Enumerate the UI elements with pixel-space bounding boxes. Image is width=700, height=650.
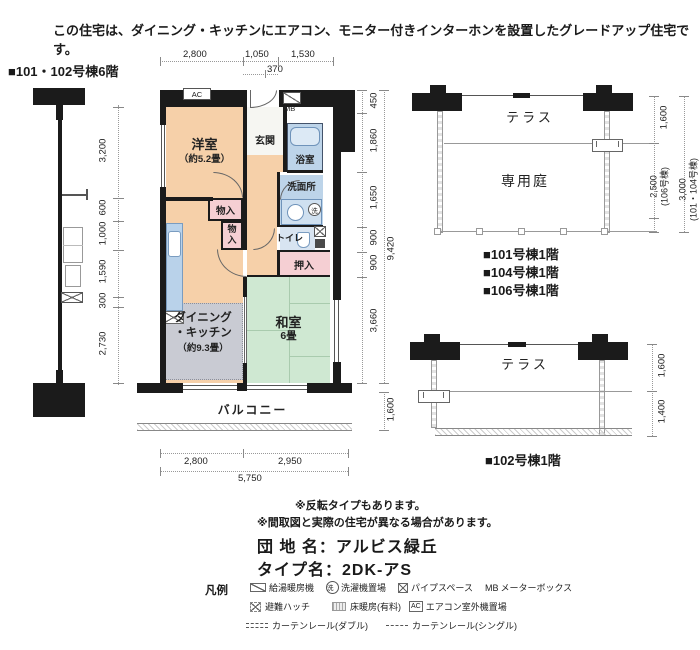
closet-upper-label: 物入 — [208, 203, 243, 217]
dim-line — [160, 471, 348, 472]
room-dk-label1: ダイニング — [163, 309, 243, 325]
wall — [137, 383, 183, 393]
entrance-door-arc — [250, 90, 277, 108]
wall — [166, 197, 213, 201]
dim-tick — [160, 467, 161, 476]
wall — [583, 93, 633, 111]
legend-pipe-label: パイプスペース — [411, 581, 473, 594]
garden-fence-post — [437, 111, 443, 233]
building-label: ■104号棟1階 — [483, 262, 559, 281]
garden-gate — [618, 141, 619, 147]
wall — [33, 88, 85, 105]
dim-tick — [357, 252, 367, 253]
garden-fence-post — [434, 228, 441, 235]
fence-line — [450, 391, 632, 392]
dim-tick — [113, 297, 124, 298]
terrace-step — [423, 392, 424, 398]
dim-label-balcony: 1,600 — [386, 388, 397, 432]
ac-unit-icon: AC — [183, 88, 211, 100]
bathtub-icon — [290, 127, 320, 146]
window — [338, 300, 339, 362]
building-label: ■106号棟1階 — [483, 280, 559, 299]
dim-label: 900 — [369, 241, 380, 285]
dim-tick — [348, 449, 349, 458]
dim-tick — [649, 96, 659, 97]
room-oshiire-label: 押入 — [278, 257, 330, 272]
room-washroom-label: 洗面所 — [280, 179, 323, 193]
dim-tick — [649, 143, 659, 144]
dim-tick — [647, 436, 657, 437]
dim-note: (106号棟) — [659, 155, 670, 219]
terrace-label-upper: テラス — [495, 107, 565, 126]
wall — [430, 85, 446, 93]
dim-tick — [647, 391, 657, 392]
wall — [410, 342, 460, 360]
legend-ac-label: エアコン室外機置場 — [426, 600, 507, 613]
dim-label: 450 — [369, 79, 380, 123]
dim-label: 2,730 — [98, 322, 109, 366]
closet-lower-label: 物入 — [224, 224, 240, 245]
wall — [58, 120, 62, 385]
legend-row-3: カーテンレール(ダブル) カーテンレール(シングル) — [246, 619, 517, 632]
dim-line — [362, 90, 363, 383]
dim-label: 1,600 — [659, 96, 670, 140]
dim-value: 2,500 — [649, 155, 660, 219]
garden-fence-line — [435, 231, 657, 232]
dim-tick — [160, 449, 161, 458]
building-label: ■102号棟1階 — [485, 450, 561, 469]
room-dk-label2: ・キッチン — [163, 324, 243, 340]
garden-fence-post — [518, 228, 525, 235]
dim-label: 1,400 — [657, 390, 668, 434]
curtain-box-icon — [315, 239, 325, 248]
dim-tick — [357, 227, 367, 228]
legend-floor-heating-label: 床暖房(有料) — [350, 600, 401, 613]
room-dk-size: （約9.3畳） — [163, 340, 243, 354]
dim-label: 2,950 — [278, 456, 302, 467]
wall — [424, 334, 440, 342]
corridor-fixture — [65, 265, 81, 287]
pipe-space-icon — [314, 226, 326, 237]
window — [183, 385, 237, 386]
garden-gate — [596, 141, 597, 147]
wall — [243, 277, 247, 297]
dim-note: (101・104号棟) — [688, 147, 699, 233]
garden-fence-post — [604, 111, 610, 233]
dim-label: 2,800 — [184, 456, 208, 467]
dim-label: 2,500 (106号棟) — [649, 155, 670, 219]
curtain-rail-single-icon — [386, 625, 408, 627]
dim-tick — [649, 232, 659, 233]
site-boundary — [435, 428, 632, 436]
dim-tick — [357, 383, 367, 384]
ac-unit-icon: AC — [409, 601, 423, 612]
meter-box-prefix: MB — [485, 583, 499, 593]
wall — [243, 363, 247, 383]
pipe-space-icon — [61, 292, 83, 303]
balcony-rail — [137, 423, 352, 431]
dim-tick — [113, 198, 124, 199]
building-label: ■101号棟1階 — [483, 244, 559, 263]
dim-tick — [243, 57, 244, 66]
dim-tick — [113, 383, 124, 384]
dim-tick — [379, 383, 389, 384]
wall — [56, 105, 63, 120]
header-notice: この住宅は、ダイニング・キッチンにエアコン、モニター付きインターホンを設置したグ… — [53, 20, 700, 58]
dim-label: 1,530 — [291, 49, 315, 60]
dim-line — [652, 344, 653, 436]
boiler-icon — [250, 583, 266, 592]
wall — [513, 93, 530, 98]
dim-label-total: 5,750 — [238, 473, 262, 484]
corridor-fixture — [63, 245, 83, 246]
wall — [243, 107, 247, 250]
dim-tick — [357, 172, 367, 173]
estate-name: 団 地 名：アルビス緑丘 — [257, 533, 438, 557]
dim-label: 370 — [267, 64, 283, 75]
wall — [33, 383, 85, 417]
dim-label: 1,860 — [369, 119, 380, 163]
room-toilet-label: トイレ — [276, 231, 302, 244]
dim-tick — [357, 113, 367, 114]
wall — [237, 383, 247, 391]
type-name: タイプ名：2DK-アS — [257, 556, 412, 580]
note-difference: ※間取図と実際の住宅が異なる場合があります。 — [257, 514, 498, 530]
dim-tick — [113, 250, 124, 251]
window — [161, 125, 162, 187]
dim-label: 3,200 — [98, 129, 109, 173]
room-tatami-size: 6畳 — [247, 328, 330, 343]
hallway — [247, 172, 277, 277]
legend-mb-label: メーターボックス — [500, 581, 572, 594]
legend-curtain-single-label: カーテンレール(シングル) — [412, 619, 517, 632]
tatami-line — [289, 303, 330, 304]
pipe-space-icon — [398, 583, 408, 593]
dim-tick — [379, 90, 389, 91]
room-entrance-label: 玄関 — [247, 132, 283, 147]
wall — [412, 93, 462, 111]
room-entrance — [247, 107, 283, 155]
tatami-line — [289, 356, 330, 357]
dim-tick — [113, 107, 124, 108]
floorplan-page: この住宅は、ダイニング・キッチンにエアコン、モニター付きインターホンを設置したグ… — [0, 0, 700, 650]
wall — [277, 250, 330, 252]
dim-tick — [348, 467, 349, 476]
dim-label: 1,650 — [369, 176, 380, 220]
meter-box-label: MB — [284, 104, 295, 113]
dim-tick — [113, 307, 124, 308]
escape-hatch-icon — [250, 602, 261, 612]
dim-tick — [160, 57, 161, 66]
window — [164, 125, 165, 187]
dim-line — [160, 453, 348, 454]
wall — [307, 383, 352, 393]
dim-tick — [113, 221, 124, 222]
garden-label: 専用庭 — [485, 171, 565, 191]
washstand-sink-icon — [287, 204, 304, 221]
fence-post — [599, 360, 605, 436]
dim-value: 3,000 — [678, 147, 689, 233]
wall — [508, 342, 526, 347]
legend-curtain-double-label: カーテンレール(ダブル) — [272, 619, 368, 632]
dim-label: 3,660 — [369, 299, 380, 343]
dim-label: 2,800 — [183, 49, 207, 60]
dim-label: 1,050 — [245, 49, 269, 60]
sliding-door — [244, 297, 245, 363]
dim-line — [118, 105, 119, 385]
floor-heating-icon — [332, 602, 346, 611]
dim-label-total: 9,420 — [386, 227, 397, 271]
legend-row-1: 給湯暖房機 洗 洗濯機置場 パイプスペース MB メーターボックス — [250, 581, 572, 594]
wall — [333, 90, 355, 152]
legend-hatch-label: 避難ハッチ — [265, 600, 310, 613]
wall — [596, 85, 612, 93]
dim-label: 3,000 (101・104号棟) — [678, 147, 699, 233]
dim-tick — [647, 344, 657, 345]
dim-tick — [243, 449, 244, 458]
wall — [287, 170, 323, 173]
wall — [578, 342, 628, 360]
dim-label: 300 — [98, 279, 109, 323]
wall — [62, 194, 88, 196]
legend-row-2: 避難ハッチ 床暖房(有料) AC エアコン室外機置場 — [250, 600, 507, 613]
entrance-door-leaf — [250, 90, 251, 108]
dim-tick — [679, 96, 689, 97]
dim-label: 1,600 — [657, 344, 668, 388]
dim-tick — [265, 70, 266, 78]
garden-fence-post — [601, 228, 608, 235]
note-reversed-type: ※反転タイプもあります。 — [295, 497, 426, 513]
dim-tick — [333, 57, 334, 66]
window — [247, 389, 307, 390]
dim-tick — [357, 277, 367, 278]
wall — [247, 275, 330, 277]
room-western-size: （約5.2畳） — [166, 151, 243, 165]
garden-fence-line — [444, 143, 657, 144]
washer-place-icon: 洗 — [326, 581, 339, 594]
legend-boiler-label: 給湯暖房機 — [269, 581, 314, 594]
curtain-rail-double-icon — [246, 623, 268, 628]
hallway — [247, 155, 283, 172]
dim-tick — [357, 90, 367, 91]
plan-title: ■101・102号棟6階 — [8, 61, 118, 80]
terrace-label-lower: テラス — [490, 354, 560, 373]
wall — [592, 334, 608, 342]
kitchen-sink — [168, 231, 181, 257]
window — [247, 385, 307, 386]
washer-place-icon: 洗 — [308, 203, 321, 216]
wall — [86, 189, 88, 200]
window — [183, 389, 237, 390]
legend-washer-label: 洗濯機置場 — [341, 581, 386, 594]
window — [334, 300, 335, 362]
dim-line — [160, 61, 333, 62]
meter-box-icon — [283, 92, 301, 104]
legend-title: 凡例 — [205, 582, 228, 598]
garden-fence-post — [560, 228, 567, 235]
balcony-label: バルコニー — [180, 401, 325, 418]
room-bath-label: 浴室 — [287, 152, 323, 166]
garden-fence-post — [476, 228, 483, 235]
terrace-step — [443, 392, 444, 398]
